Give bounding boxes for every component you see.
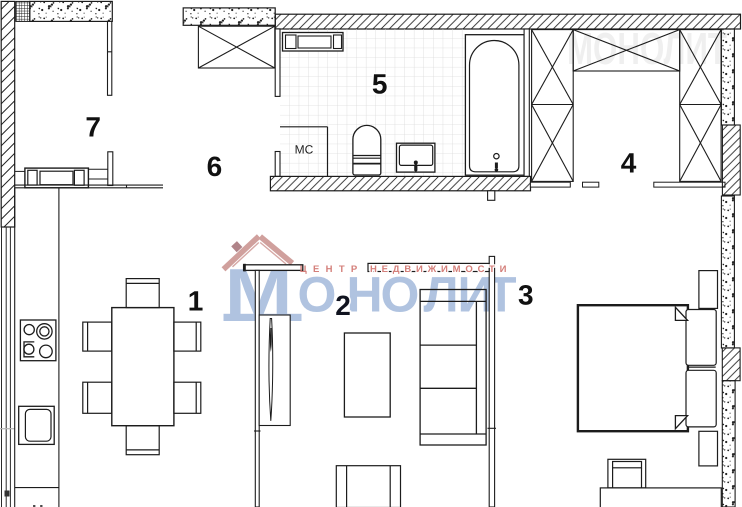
svg-text:МОНОЛИТ: МОНОЛИТ [567,23,727,74]
svg-text:1: 1 [188,286,204,317]
svg-text:НЕДВИЖИМОСТИ: НЕДВИЖИМОСТИ [370,264,511,275]
svg-text:ЦЕНТР: ЦЕНТР [300,264,364,275]
svg-text:МС: МС [295,143,314,157]
svg-text:Н: Н [32,503,44,507]
svg-text:6: 6 [207,151,223,182]
svg-text:3: 3 [518,280,534,311]
svg-text:5: 5 [372,69,388,100]
svg-text:2: 2 [335,290,351,321]
svg-text:4: 4 [621,148,637,179]
svg-text:7: 7 [85,112,101,143]
